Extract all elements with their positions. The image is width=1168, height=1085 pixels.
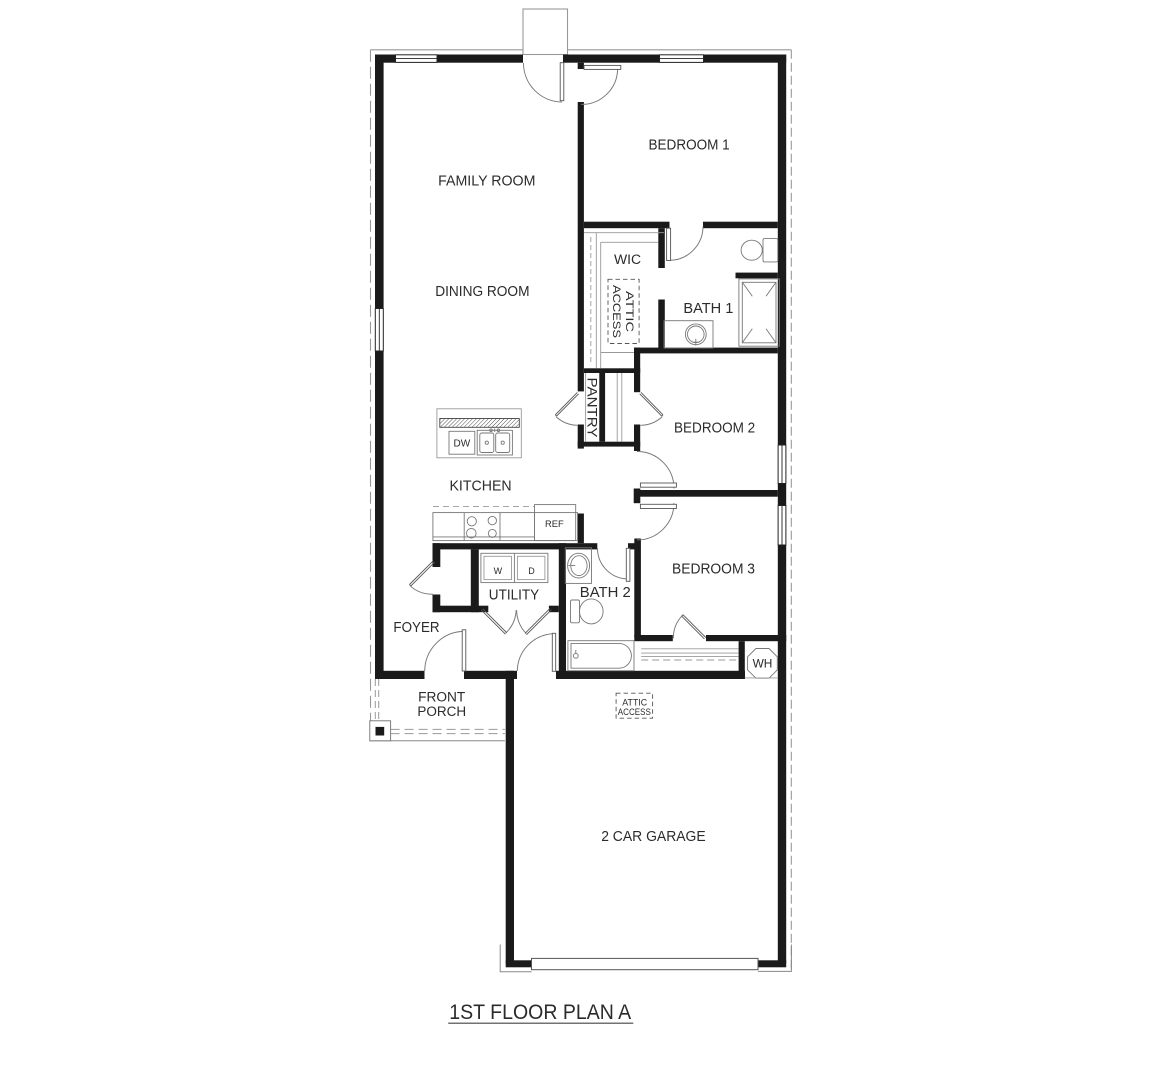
svg-text:BEDROOM 1: BEDROOM 1 <box>649 136 730 153</box>
svg-text:BATH 2: BATH 2 <box>580 585 631 601</box>
svg-text:FRONT: FRONT <box>418 689 465 704</box>
svg-text:DINING ROOM: DINING ROOM <box>435 283 529 300</box>
svg-text:ACCESS: ACCESS <box>610 285 622 338</box>
svg-text:KITCHEN: KITCHEN <box>450 477 512 494</box>
svg-text:UTILITY: UTILITY <box>489 588 540 604</box>
svg-text:D: D <box>528 566 535 576</box>
svg-text:DW: DW <box>454 438 471 450</box>
svg-text:BEDROOM 2: BEDROOM 2 <box>674 420 755 437</box>
svg-text:FOYER: FOYER <box>393 620 439 636</box>
svg-text:PANTRY: PANTRY <box>585 378 600 438</box>
svg-text:ACCESS: ACCESS <box>618 707 651 717</box>
svg-text:1ST FLOOR PLAN A: 1ST FLOOR PLAN A <box>449 1001 631 1024</box>
svg-text:PORCH: PORCH <box>417 704 466 719</box>
svg-text:WIC: WIC <box>614 252 641 267</box>
svg-text:2 CAR GARAGE: 2 CAR GARAGE <box>601 828 706 845</box>
svg-text:FAMILY ROOM: FAMILY ROOM <box>438 173 535 190</box>
svg-text:WH: WH <box>753 658 773 670</box>
svg-text:BATH 1: BATH 1 <box>683 301 733 317</box>
svg-text:W: W <box>494 566 503 576</box>
svg-text:BEDROOM 3: BEDROOM 3 <box>672 560 755 577</box>
svg-text:ATTIC: ATTIC <box>623 291 635 332</box>
svg-text:REF: REF <box>545 519 564 530</box>
